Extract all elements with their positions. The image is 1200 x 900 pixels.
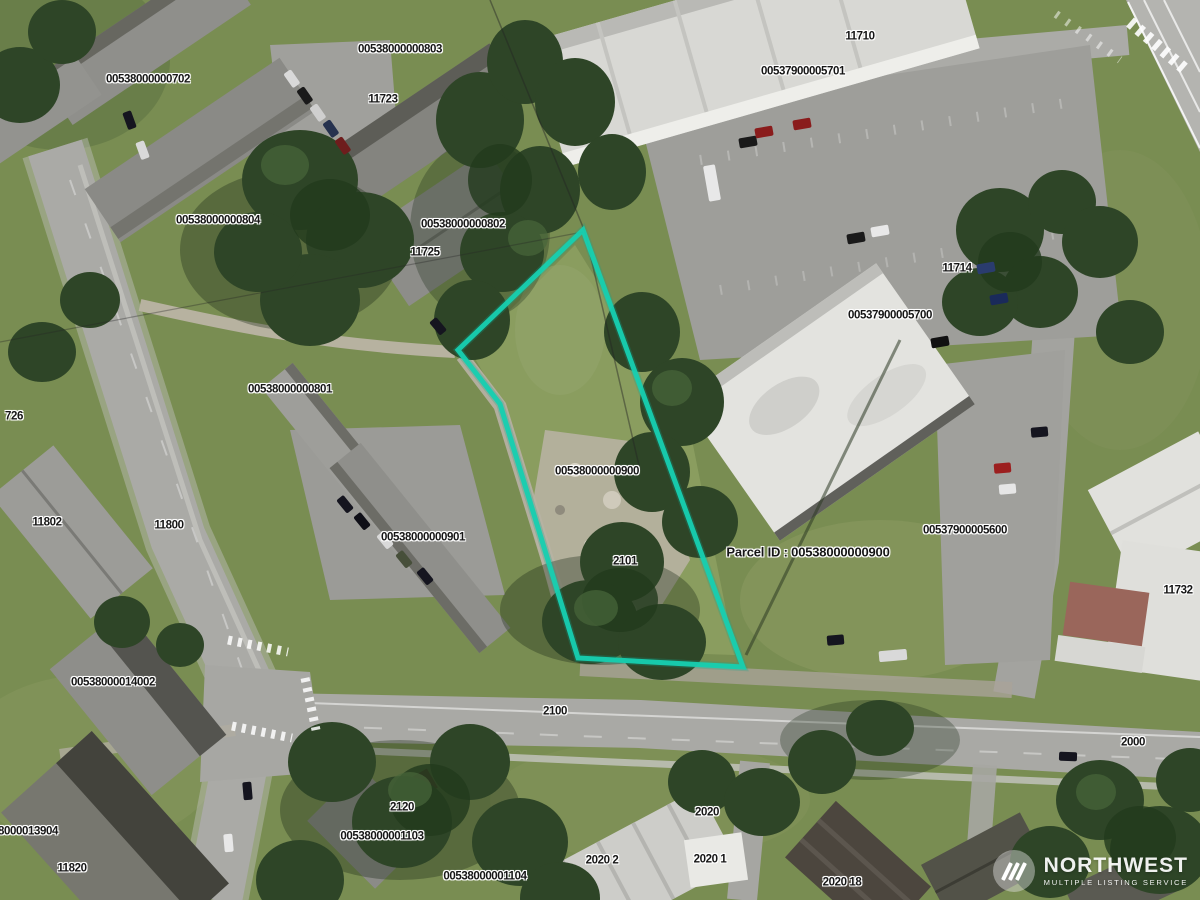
parcel-id-label: 00537900005700: [848, 310, 932, 322]
nwmls-logo-icon: [993, 850, 1035, 892]
nwmls-watermark: NORTHWEST MULTIPLE LISTING SERVICE: [993, 850, 1188, 892]
address-label: 2020 18: [823, 877, 862, 889]
parcel-id-label: 00537900005600: [923, 525, 1007, 537]
parcel-id-label: 00538000014002: [71, 677, 155, 689]
address-label: 11725: [410, 247, 439, 259]
aerial-map-screenshot: 0053800000070200538000000803117231171000…: [0, 0, 1200, 900]
parcel-id-label: 00538000001103: [340, 831, 423, 843]
address-label: 11820: [57, 863, 86, 875]
parcel-id-label: 00538000000803: [358, 44, 442, 56]
parcel-id-label: 00538000000804: [176, 215, 260, 227]
address-label: 726: [5, 411, 23, 423]
address-label: 2020: [695, 807, 719, 819]
parcel-id-label: 00537900005701: [761, 66, 845, 78]
address-label: 2100: [543, 706, 567, 718]
address-label: 11800: [154, 520, 183, 532]
parcel-id-label: 00538000000802: [421, 219, 505, 231]
parcel-id-label: 00538000000901: [381, 532, 465, 544]
address-label: 11714: [942, 263, 971, 275]
parcel-id-label: 00538000000900: [555, 466, 639, 478]
parcel-callout-label: Parcel ID : 00538000000900: [726, 546, 889, 559]
parcel-id-label: 00538000000801: [248, 384, 332, 396]
watermark-tagline: MULTIPLE LISTING SERVICE: [1044, 879, 1188, 887]
address-label: 2101: [613, 556, 637, 568]
watermark-name: NORTHWEST: [1044, 855, 1188, 876]
parcel-id-label: 00538000001104: [443, 871, 526, 883]
address-label: 11732: [1163, 585, 1192, 597]
address-label: 2020 2: [586, 855, 619, 867]
labels-layer: 0053800000070200538000000803117231171000…: [0, 0, 1200, 900]
parcel-id-label: 00538000000702: [106, 74, 190, 86]
parcel-id-label: 8000013904: [0, 826, 58, 838]
address-label: 11723: [368, 94, 397, 106]
address-label: 2120: [390, 802, 414, 814]
address-label: 2000: [1121, 737, 1145, 749]
address-label: 11710: [845, 31, 874, 43]
address-label: 2020 1: [694, 854, 727, 866]
address-label: 11802: [32, 517, 61, 529]
